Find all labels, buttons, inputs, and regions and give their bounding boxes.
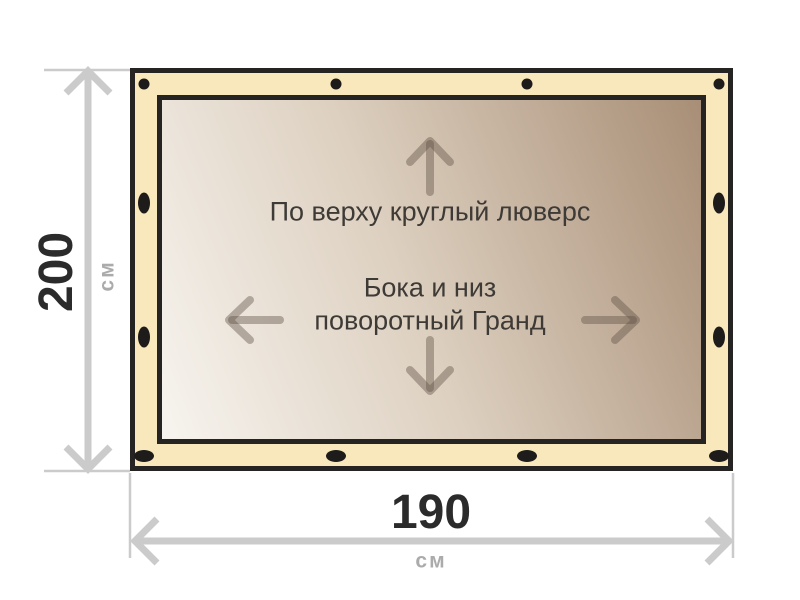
grommet-oval-icon (517, 450, 537, 462)
width-unit-label: см (415, 551, 446, 572)
grommet-oval-icon (326, 450, 346, 462)
sides-grommet-label-line2: поворотный Гранд (314, 308, 545, 335)
grommet-round-icon (714, 79, 725, 90)
width-value-label: 190 (391, 489, 471, 537)
grommet-oval-icon (709, 450, 729, 462)
height-value-label: 200 (33, 232, 81, 312)
grommet-round-icon (522, 79, 533, 90)
sides-grommet-label-line1: Бока и низ (364, 275, 497, 302)
arrow-down-icon (410, 340, 450, 391)
grommet-oval-icon (138, 193, 150, 214)
banner-dimension-diagram: По верху круглый люверс Бока и низ повор… (0, 0, 800, 600)
grommet-oval-icon (138, 327, 150, 348)
top-edge-grommet-label: По верху круглый люверс (270, 199, 591, 226)
arrow-up-icon (410, 141, 450, 192)
arrow-right-icon (585, 300, 636, 340)
grommet-oval-icon (713, 327, 725, 348)
edge-direction-arrows (162, 100, 701, 439)
grommet-oval-icon (134, 450, 154, 462)
grommet-round-icon (331, 79, 342, 90)
banner-canvas: По верху круглый люверс Бока и низ повор… (130, 68, 733, 471)
height-unit-label: см (97, 260, 118, 291)
grommet-round-icon (139, 79, 150, 90)
banner-inner-area: По верху круглый люверс Бока и низ повор… (157, 95, 706, 444)
grommet-oval-icon (713, 193, 725, 214)
arrow-left-icon (229, 300, 280, 340)
